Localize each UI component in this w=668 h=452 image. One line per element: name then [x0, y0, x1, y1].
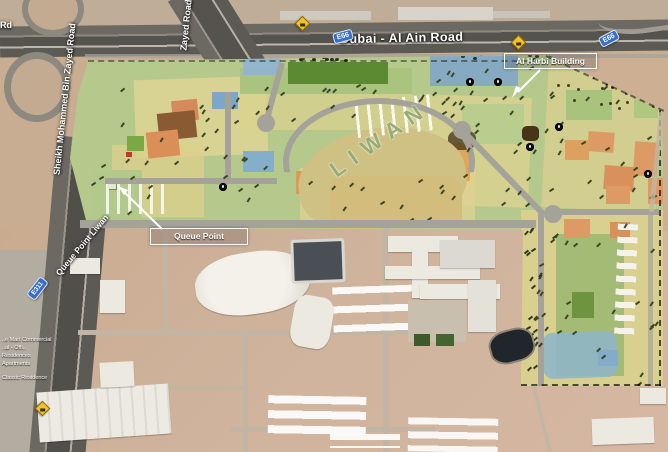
shrub-speck — [573, 99, 576, 102]
tree-dash — [484, 69, 488, 74]
tree-dash — [596, 242, 601, 247]
place-label: ..al - Offi.. — [2, 344, 72, 352]
tree-dash — [538, 272, 543, 277]
place-label: Apartments — [2, 360, 72, 368]
tree-dash — [263, 166, 268, 171]
tree-dash — [463, 173, 468, 177]
tree-dash — [372, 90, 376, 95]
tree-dash — [552, 235, 557, 239]
tree-dash — [533, 317, 538, 321]
tree-dash — [545, 326, 549, 331]
road — [383, 228, 389, 452]
tree-dash — [649, 325, 654, 329]
tree-dash — [650, 323, 655, 327]
tree-dash — [238, 187, 243, 191]
shrub-speck — [601, 87, 604, 90]
tree-dash — [450, 113, 455, 118]
tree-dash — [549, 187, 554, 191]
tree-dash — [560, 138, 564, 143]
tree-dash — [615, 100, 619, 105]
tree-dash — [461, 106, 465, 111]
tree-dash — [555, 233, 559, 238]
tree-dash — [527, 366, 532, 371]
tree-dash — [360, 187, 365, 192]
poi-marker — [555, 123, 563, 131]
tree-dash — [599, 194, 604, 198]
tree-dash — [566, 301, 571, 305]
tree-dash — [501, 201, 506, 205]
tree-dash — [442, 111, 447, 115]
tree-dash — [146, 194, 150, 199]
shrub-speck — [626, 101, 629, 104]
tree-dash — [470, 90, 474, 95]
tree-dash — [541, 312, 546, 317]
tree-dash — [585, 97, 590, 102]
tree-dash — [205, 117, 210, 122]
tree-dash — [246, 197, 250, 202]
tree-dash — [380, 200, 385, 204]
tree-dash — [550, 95, 555, 99]
tree-dash — [451, 72, 455, 77]
building — [640, 388, 666, 404]
tree-dash — [130, 176, 135, 180]
tree-dash — [265, 106, 269, 111]
tree-dash — [241, 156, 245, 161]
tree-dash — [517, 142, 522, 146]
tree-dash — [632, 187, 636, 192]
building-warehouse — [36, 383, 171, 442]
tree-dash — [231, 105, 235, 110]
tree-dash — [647, 136, 652, 140]
tree-dash — [649, 302, 653, 307]
tree-dash — [264, 86, 269, 91]
tree-dash — [530, 248, 535, 252]
poi-marker — [526, 143, 534, 151]
tree-dash — [549, 91, 553, 96]
road-label-rd-fragment: Rd — [0, 20, 12, 30]
place-label: Residences — [2, 352, 72, 360]
shrub-speck — [609, 102, 612, 105]
building-darkroof — [290, 238, 346, 284]
tree-dash — [361, 87, 366, 91]
site-boundary — [88, 60, 548, 62]
tree-dash — [605, 147, 610, 151]
tree-dash — [532, 329, 537, 334]
tree-dash — [91, 182, 96, 186]
courtyard-green — [436, 334, 454, 346]
tree-dash — [202, 109, 206, 114]
tree-dash — [509, 111, 513, 116]
tree-dash — [621, 162, 626, 167]
tree-dash — [544, 128, 548, 133]
tree-dash — [533, 365, 538, 370]
tree-dash — [280, 91, 285, 95]
road — [80, 220, 536, 228]
tree-dash — [466, 147, 470, 152]
tree-dash — [326, 89, 331, 94]
tree-dash — [233, 119, 238, 123]
satellite-map: LIWAN Dubai - Al Ain Road Sheikh Mohamme… — [0, 0, 668, 452]
tree-dash — [223, 155, 228, 160]
building-warehouse-rows — [408, 417, 499, 452]
building-complex — [440, 240, 495, 268]
tree-dash — [524, 231, 529, 236]
shrub-speck — [618, 107, 621, 110]
tree-dash — [587, 179, 592, 184]
tree-dash — [332, 88, 337, 93]
tree-dash — [531, 284, 536, 289]
tree-dash — [236, 97, 240, 102]
tree-dash — [650, 248, 655, 253]
tree-dash — [581, 141, 586, 145]
tree-dash — [533, 149, 537, 154]
tree-dash — [564, 240, 568, 245]
tree-dash — [524, 250, 529, 255]
tree-dash — [201, 132, 205, 137]
tree-dash — [474, 129, 479, 134]
tree-dash — [505, 188, 510, 193]
tree-dash — [475, 122, 480, 126]
tree-dash — [356, 84, 361, 88]
callout-queue-point: Queue Point — [150, 228, 248, 245]
tree-dash — [573, 242, 578, 246]
tree-dash — [127, 211, 132, 215]
small-place-labels: ..e Mart Commercial ..al - Offi.. Reside… — [2, 336, 72, 382]
tree-dash — [632, 174, 637, 178]
tree-dash — [446, 70, 450, 75]
tree-dash — [174, 161, 179, 165]
shrub-speck — [557, 84, 560, 87]
tree-dash — [528, 316, 533, 321]
tree-dash — [254, 184, 259, 188]
tree-dash — [527, 176, 532, 181]
tree-dash — [255, 111, 260, 116]
tree-dash — [537, 289, 541, 294]
tree-dash — [291, 118, 296, 122]
site-boundary — [521, 384, 661, 386]
tree-dash — [120, 88, 125, 92]
tree-dash — [539, 263, 544, 267]
tree-dash — [330, 104, 335, 109]
building-strip-top — [398, 7, 493, 20]
poi-marker — [494, 78, 502, 86]
tree-dash — [349, 182, 354, 187]
tree-dash — [440, 189, 444, 194]
tree-dash — [243, 157, 248, 161]
tree-dash — [525, 202, 530, 206]
tree-dash — [101, 164, 106, 168]
tree-dash — [199, 105, 204, 110]
tree-dash — [557, 329, 562, 333]
tree-dash — [351, 114, 356, 119]
tree-dash — [639, 372, 643, 377]
tree-dash — [99, 176, 104, 180]
building — [100, 280, 125, 313]
tree-dash — [418, 179, 423, 183]
tree-dash — [483, 98, 488, 102]
tree-dash — [572, 330, 577, 334]
tree-dash — [635, 301, 640, 305]
callout-al-harbi-building: Al Harbi Building — [504, 53, 597, 69]
shrub-speck — [567, 84, 570, 87]
shrub-speck — [577, 88, 580, 91]
tree-dash — [519, 95, 524, 100]
tree-dash — [565, 314, 569, 319]
tree-dash — [526, 252, 531, 257]
poi-marker — [219, 183, 227, 191]
tree-dash — [451, 196, 455, 201]
tree-dash — [538, 342, 543, 347]
tree-dash — [611, 309, 615, 314]
building-warehouse-rows — [332, 285, 414, 334]
tree-dash — [502, 95, 507, 100]
tree-dash — [633, 167, 638, 171]
tree-dash — [322, 87, 327, 91]
building — [99, 361, 134, 388]
tree-dash — [601, 354, 606, 358]
tree-dash — [550, 238, 555, 242]
tree-dash — [538, 274, 542, 279]
tree-dash — [558, 150, 562, 155]
tree-dash — [533, 316, 538, 321]
place-label: ..e Mart Commercial — [2, 336, 72, 344]
tree-dash — [222, 175, 227, 179]
tree-dash — [517, 190, 521, 195]
tree-dash — [603, 86, 608, 91]
tree-dash — [458, 100, 462, 105]
place-label: Classic Residence — [2, 374, 72, 382]
tree-dash — [540, 291, 544, 296]
tree-dash — [148, 185, 153, 189]
poi-marker — [644, 170, 652, 178]
tree-dash — [513, 150, 518, 155]
courtyard-green — [414, 334, 430, 346]
tree-dash — [342, 206, 346, 211]
tree-dash — [160, 137, 164, 142]
tree-dash — [204, 147, 209, 152]
tree-dash — [624, 223, 628, 228]
road — [243, 333, 248, 452]
tree-dash — [145, 160, 149, 165]
tree-dash — [125, 159, 130, 164]
tree-dash — [400, 204, 404, 209]
tree-dash — [214, 128, 218, 133]
tree-dash — [596, 347, 601, 352]
building-complex — [468, 280, 496, 332]
tree-dash — [529, 228, 534, 233]
tree-dash — [530, 277, 534, 282]
poi-marker — [466, 78, 474, 86]
building-warehouse-rows — [330, 434, 400, 448]
tree-dash — [121, 122, 125, 127]
shrub-speck — [600, 103, 603, 106]
tree-dash — [439, 185, 444, 190]
building — [592, 417, 655, 445]
road-label-dubai-al-ain: Dubai - Al Ain Road — [340, 30, 464, 47]
